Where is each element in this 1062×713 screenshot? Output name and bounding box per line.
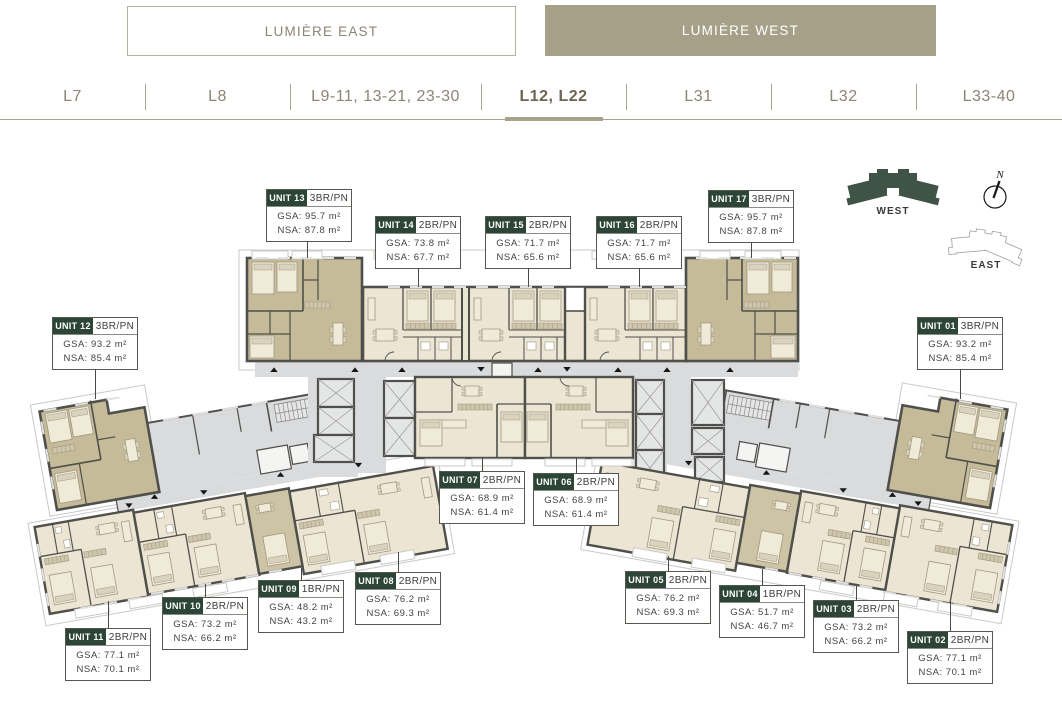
- svg-text:N: N: [995, 169, 1004, 181]
- svg-text:EAST: EAST: [971, 260, 1002, 271]
- svg-text:WEST: WEST: [877, 206, 910, 217]
